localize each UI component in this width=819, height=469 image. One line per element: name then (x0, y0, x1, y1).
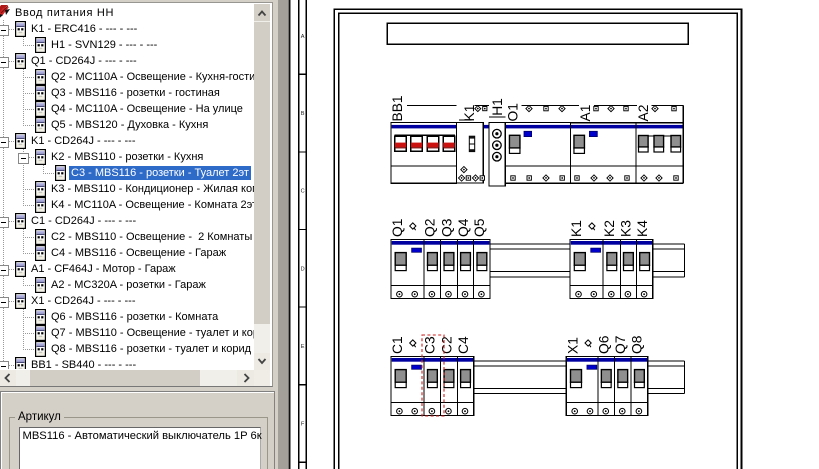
svg-text:C3: C3 (423, 336, 438, 354)
svg-text:Q1: Q1 (390, 219, 405, 237)
svg-text:Q2: Q2 (423, 219, 438, 237)
svg-text:Q7: Q7 (613, 336, 628, 354)
svg-text:D: D (301, 266, 305, 272)
svg-text:K4: K4 (635, 220, 650, 237)
svg-text:Q6: Q6 (597, 335, 612, 354)
svg-text:A1: A1 (578, 105, 593, 122)
svg-text:C4: C4 (456, 336, 471, 354)
svg-text:K3: K3 (619, 220, 634, 237)
svg-text:C: C (301, 189, 305, 195)
svg-text:A: A (301, 34, 305, 40)
svg-text:Q4: Q4 (456, 218, 471, 237)
svg-text:K2: K2 (602, 220, 617, 237)
svg-text:C1: C1 (390, 336, 405, 354)
svg-text:Q3: Q3 (439, 218, 454, 237)
svg-text:BB1: BB1 (390, 95, 405, 121)
svg-text:H1: H1 (490, 98, 505, 116)
svg-text:X1: X1 (565, 337, 580, 354)
svg-text:K1: K1 (462, 105, 477, 122)
svg-text:A2: A2 (636, 105, 651, 122)
svg-text:E: E (301, 344, 305, 350)
svg-text:O1: O1 (505, 103, 520, 121)
svg-text:Q5: Q5 (472, 218, 487, 237)
svg-text:C2: C2 (439, 336, 454, 354)
svg-text:Q8: Q8 (630, 335, 645, 354)
svg-text:K1: K1 (569, 220, 584, 237)
svg-text:B: B (301, 111, 305, 117)
svg-text:F: F (301, 422, 305, 428)
